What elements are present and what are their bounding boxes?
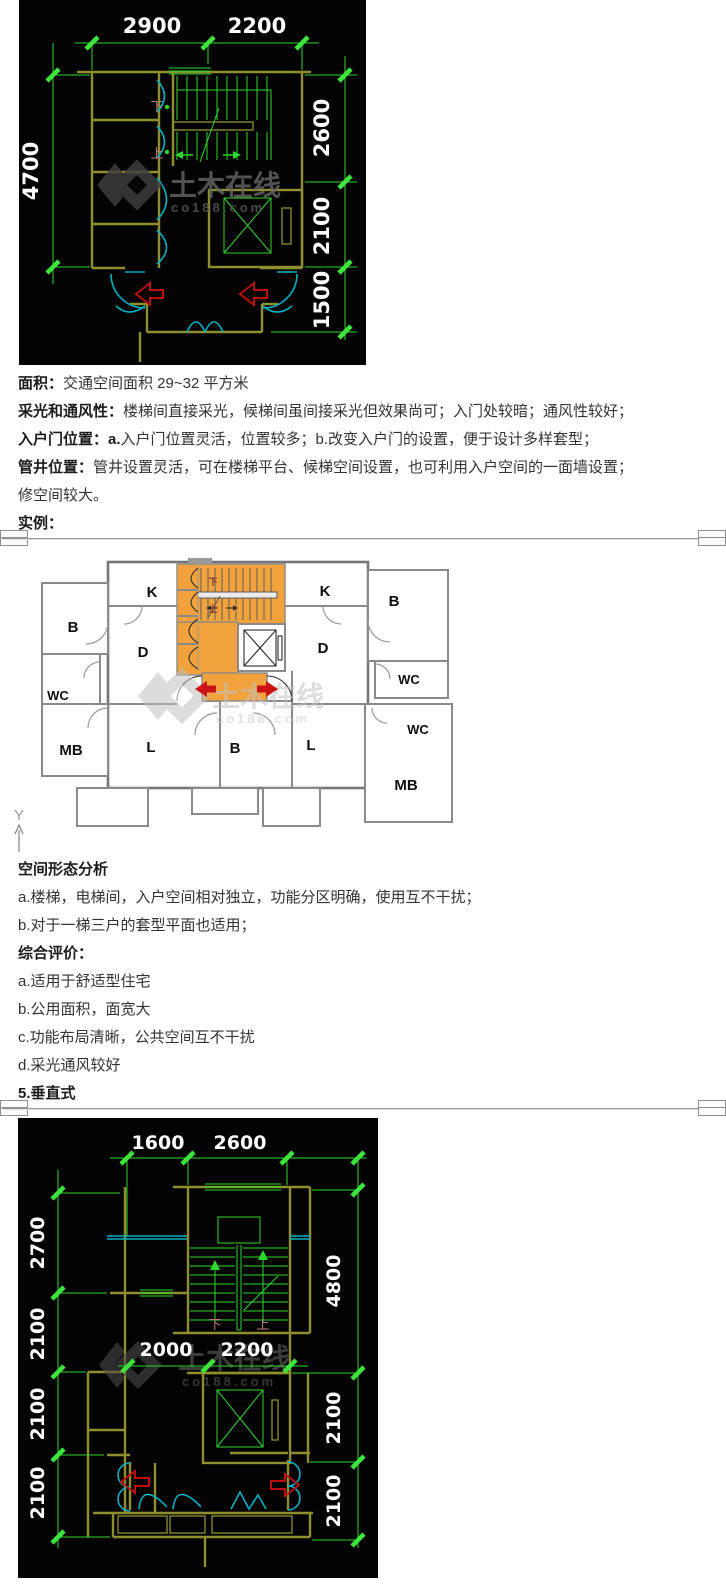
dim-label: 2900 <box>123 14 181 38</box>
document-page: 土木在线 co188.com 2900 2200 4700 <box>0 0 726 1584</box>
paragraph: c.功能布局清晰，公共空间互不干扰 <box>18 1024 255 1052</box>
stair-up-label: 上 <box>256 1317 269 1332</box>
room-label: K <box>320 583 331 600</box>
paragraph: 修空间较大。 <box>18 482 108 510</box>
cad-plan-3-image: 土木在线 co188.com 1600 2600 2700 <box>18 1118 378 1578</box>
room-label: D <box>318 640 329 657</box>
stair-up-label: 上 <box>208 603 217 614</box>
divider-handle-right[interactable] <box>698 530 726 546</box>
paragraph: 入户门位置：a.入户门位置灵活，位置较多；b.改变入户门的设置，便于设计多样套型… <box>18 426 598 454</box>
room-label: WC <box>398 672 420 687</box>
watermark-domain: co188.com <box>171 200 265 215</box>
watermark-brand: 土木在线 <box>169 170 281 201</box>
room-label: MB <box>59 742 82 759</box>
stair-landing <box>198 592 277 598</box>
room-label: MB <box>394 777 417 794</box>
dim-label: 2100 <box>323 1475 345 1528</box>
divider-handle-right[interactable] <box>698 1100 726 1116</box>
room-label: K <box>147 584 158 601</box>
dim-label: 2200 <box>228 14 286 38</box>
window-bar <box>188 558 212 563</box>
y-axis-marker: Y <box>10 806 34 854</box>
horizontal-divider <box>0 530 726 548</box>
watermark-domain: co188.com <box>216 711 310 726</box>
heading: 空间形态分析 <box>18 856 108 884</box>
paragraph: 管井位置：管井设置灵活，可在楼梯平台、候梯空间设置，也可利用入户空间的一面墙设置… <box>18 454 633 482</box>
paragraph: 面积：交通空间面积 29~32 平方米 <box>18 370 248 398</box>
dim-label: 2000 <box>140 1339 193 1361</box>
axis-label: Y <box>14 807 24 824</box>
dim-label: 2600 <box>214 1132 267 1154</box>
room-label: B <box>230 740 241 757</box>
dim-label: 2100 <box>323 1392 345 1445</box>
room-label: WC <box>47 688 69 703</box>
room-label: L <box>146 739 155 756</box>
dim-label: 2600 <box>310 99 334 157</box>
dim-label: 2200 <box>221 1339 274 1361</box>
paragraph: d.采光通风较好 <box>18 1052 121 1080</box>
dim-label: 1500 <box>310 271 334 329</box>
stair-up-label: 上 <box>150 146 163 161</box>
room-label: D <box>138 644 149 661</box>
divider-line <box>2 538 724 539</box>
room-label: B <box>68 619 79 636</box>
example-floor-plan-image: 下 上 土木在线 co188.com K B D <box>20 556 455 830</box>
paragraph: a.适用于舒适型住宅 <box>18 968 151 996</box>
paragraph: a.楼梯，电梯间，入户空间相对独立，功能分区明确，使用互不干扰； <box>18 884 481 912</box>
dim-label: 2100 <box>27 1308 49 1361</box>
dim-label: 2100 <box>27 1467 49 1520</box>
dim-label: 2100 <box>310 197 334 255</box>
stair-down-label: 下 <box>208 577 217 587</box>
horizontal-divider <box>0 1100 726 1118</box>
cad-plan-1-image: 土木在线 co188.com 2900 2200 4700 <box>19 0 366 365</box>
room-label: B <box>389 593 400 610</box>
watermark-domain: co188.com <box>182 1374 276 1389</box>
divider-line <box>2 1108 724 1109</box>
paragraph: b.对于一梯三户的套型平面也适用； <box>18 912 256 940</box>
heading: 综合评价： <box>18 940 93 968</box>
dim-label: 4800 <box>323 1255 345 1308</box>
dim-label: 2700 <box>27 1217 49 1270</box>
paragraph: 采光和通风性：楼梯间直接采光，候梯间虽间接采光但效果尚可；入门处较暗；通风性较好… <box>18 398 633 426</box>
room-label: WC <box>407 722 429 737</box>
stair-down-label: 下 <box>150 99 163 114</box>
stair-down-label: 下 <box>208 1317 221 1332</box>
paragraph: b.公用面积，面宽大 <box>18 996 151 1024</box>
dim-label: 2100 <box>27 1388 49 1441</box>
room-label: L <box>306 737 315 754</box>
dim-label: 1600 <box>132 1132 185 1154</box>
dim-label: 4700 <box>19 142 43 200</box>
